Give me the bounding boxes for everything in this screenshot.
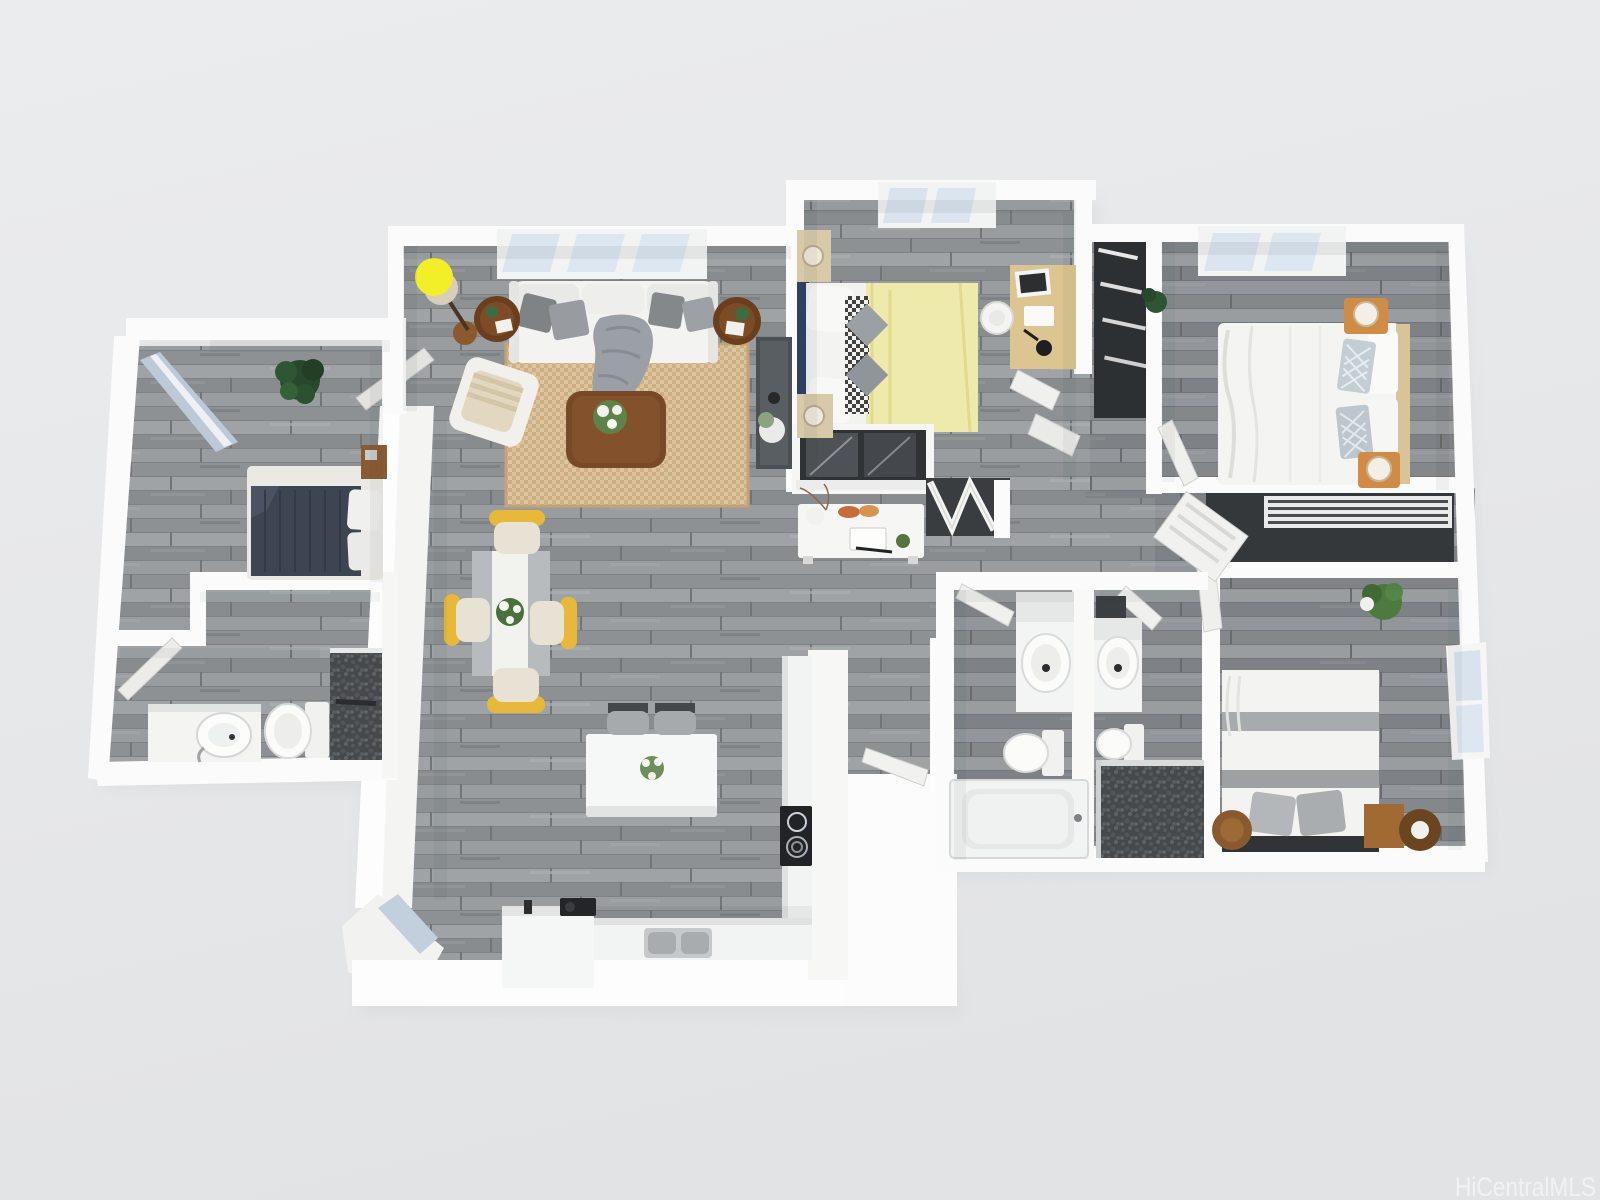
svg-text:HiCentralMLS: HiCentralMLS — [1455, 1172, 1596, 1200]
